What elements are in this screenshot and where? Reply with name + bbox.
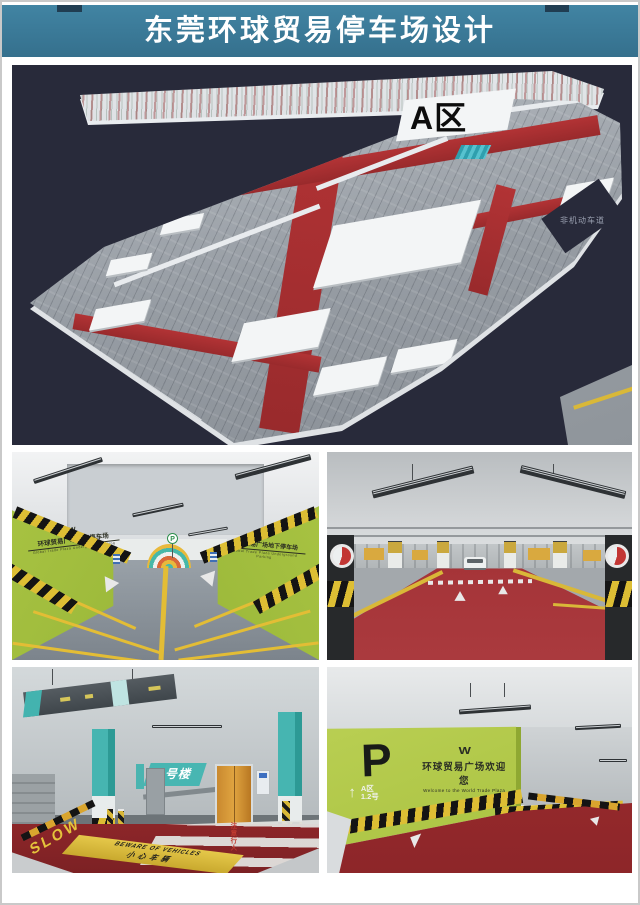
roof-block [391,339,458,373]
header-bar: 东莞环球贸易停车场设计 [2,5,638,57]
pedestrian-warning-text: 注意行人 [227,822,237,852]
red-drive-lane [144,115,601,211]
ceiling-pipe [327,535,632,537]
header-tab-left [57,5,82,12]
sign-text-mark [85,694,93,699]
ceiling-pipe [327,527,632,529]
zone-building-label: A区 1.2号 [361,785,379,801]
welcome-text-block: W 环球贸易广场欢迎您 Welcome to the World Trade P… [419,743,511,793]
light-wire [470,683,471,697]
direction-block: ↑ A区 1.2号 [348,784,378,801]
striped-post [113,554,120,564]
zone-a-label: A区 [410,93,467,139]
column-chevron-panel [605,581,632,607]
floor-arrow [454,591,465,601]
non-motorized-lane-note: 非机动车道 [560,215,605,226]
yellow-wall-band [528,548,550,560]
sign-rod [52,669,53,685]
floor-arrow [498,586,508,594]
sign-text-mark [148,686,160,691]
convex-mirror-icon [330,544,354,568]
roof-block [313,356,387,395]
building-entry-view: 1号楼 注意行人 SLOW BEWARE OF VEHICLES 小心车辆 [12,667,319,873]
column-chevron-panel [327,581,354,607]
fluorescent-light [599,759,627,762]
roof-block [160,213,204,235]
yellow-wall-band [583,550,601,561]
yellow-wall-band [412,550,428,560]
up-arrow-icon: ↑ [348,784,356,801]
car [464,557,486,570]
metal-door [146,768,166,815]
sign-pole [172,544,173,558]
drive-lane-view [327,452,632,660]
striped-post [210,552,217,562]
escalator-area [455,145,492,159]
aerial-floorplan-view: A区 非机动车道 [12,65,632,445]
header-tab-right [545,5,569,12]
sign-text-mark [60,697,70,702]
w-logo-icon: W [419,745,511,757]
welcome-cn: 环球贸易广场欢迎您 [419,759,511,787]
wood-door [215,764,253,828]
notice-board [256,770,270,795]
welcome-wall-view: P W 环球贸易广场欢迎您 Welcome to the World Trade… [327,667,632,873]
convex-mirror-icon [605,544,629,568]
fluorescent-light [152,725,222,728]
yellow-wall-band [364,548,384,560]
parking-design-poster: 东莞环球贸易停车场设计 A区 [0,0,640,905]
light-wire [412,464,413,480]
light-wire [504,683,505,697]
sign-teal-cap [23,690,42,718]
poster-title: 东莞环球贸易停车场设计 [2,5,638,57]
sign-teal-panel [111,680,130,707]
ramp-view: W 环球贸易广场地下停车场 Global Trade Plaza Undergr… [12,452,319,660]
roof-block [313,200,481,289]
parking-p-logo: P [360,732,393,787]
